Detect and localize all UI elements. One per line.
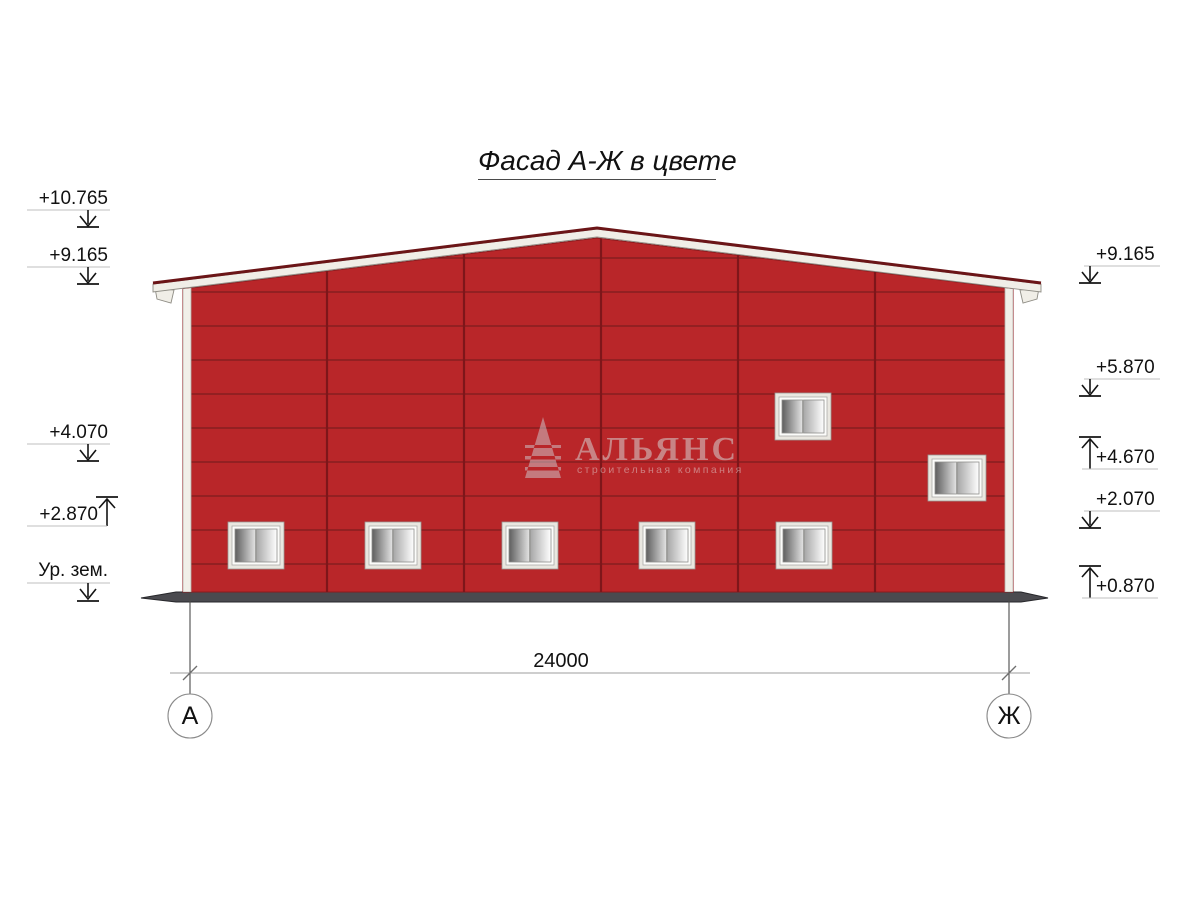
level-arrow-down-icon [27, 583, 110, 601]
level-arrow-down-icon [1079, 266, 1160, 283]
level-label: +2.870 [18, 504, 98, 525]
level-label: +0.870 [1096, 576, 1155, 597]
level-arrow-down-icon [27, 267, 110, 284]
corner-trim-left [183, 284, 191, 592]
level-label: +4.670 [1096, 447, 1155, 468]
axis-label-a: А [168, 702, 212, 730]
axis-label-zh: Ж [987, 702, 1031, 730]
level-label: +9.165 [1096, 244, 1155, 265]
level-label: +9.165 [28, 245, 108, 266]
window [776, 522, 832, 569]
level-markers-left [27, 210, 118, 601]
watermark-subtitle: строительная компания [577, 464, 744, 476]
window [775, 393, 831, 440]
dimension-label: 24000 [511, 650, 611, 673]
wall [183, 238, 1013, 592]
drawing-title: Фасад А-Ж в цвете [478, 146, 716, 180]
level-label: +4.070 [28, 422, 108, 443]
level-arrow-down-icon [27, 444, 110, 461]
level-label: Ур. зем. [28, 560, 108, 581]
window [928, 455, 986, 501]
level-arrow-down-icon [27, 210, 110, 227]
window [639, 522, 695, 569]
level-label: +5.870 [1096, 357, 1155, 378]
window [228, 522, 284, 569]
window [502, 522, 558, 569]
level-markers-right [1079, 266, 1160, 598]
level-arrow-down-icon [1079, 511, 1160, 528]
window [365, 522, 421, 569]
axis-lines [190, 592, 1009, 694]
level-label: +10.765 [28, 188, 108, 209]
facade-drawing: Фасад А-Ж в цвете +10.765 +9.165 +4.070 … [0, 0, 1200, 900]
level-arrow-down-icon [1079, 379, 1160, 396]
level-label: +2.070 [1096, 489, 1155, 510]
ground-line [141, 592, 1048, 602]
corner-trim-right [1005, 284, 1013, 592]
